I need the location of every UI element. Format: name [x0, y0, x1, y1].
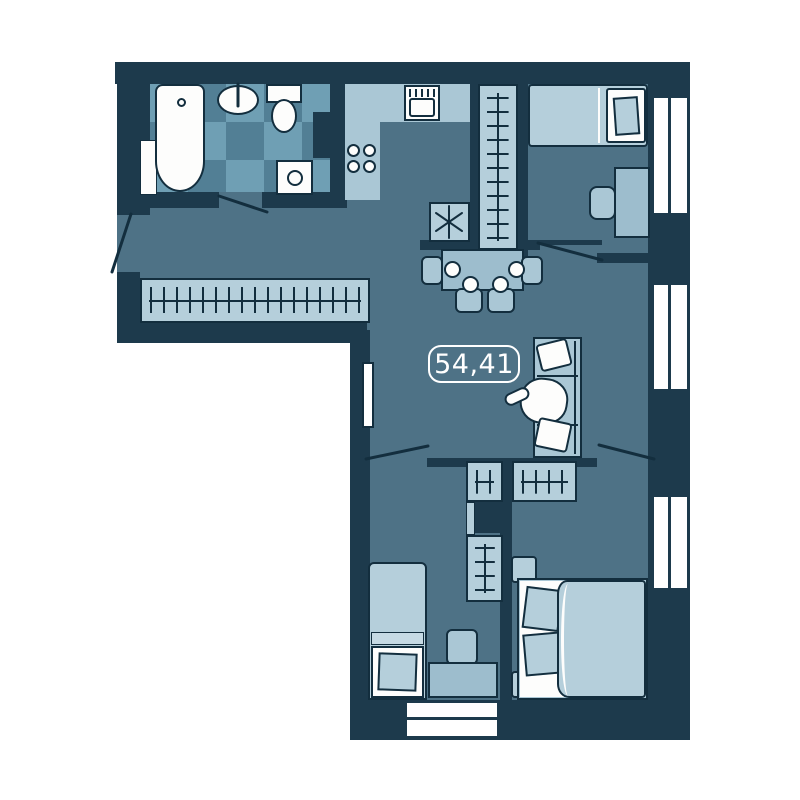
bathtub-drain	[177, 98, 186, 107]
cabinet-strip	[466, 502, 475, 535]
stove-burner-3	[347, 160, 360, 173]
wall-hall-south	[117, 320, 367, 343]
window-bottom	[407, 703, 497, 736]
wall-bedroom-tr-south	[597, 253, 648, 263]
pillow-inner	[377, 652, 417, 691]
sofa-backrest	[574, 341, 576, 454]
double-bed	[517, 578, 648, 700]
bathroom-sink	[217, 85, 259, 115]
kitchen-sink-basin	[409, 98, 435, 117]
window-right-3	[654, 497, 687, 588]
pantry-closet	[478, 84, 518, 250]
stove-burner-4	[363, 160, 376, 173]
fridge	[429, 202, 470, 242]
plate-2	[508, 261, 525, 278]
toilet-bowl	[271, 99, 297, 133]
kitchen-faucet	[409, 89, 435, 97]
stove-burner-2	[363, 144, 376, 157]
hall-wardrobe	[140, 278, 370, 323]
bed-pillow	[606, 88, 646, 143]
wardrobe-side	[466, 535, 503, 602]
wall-top	[115, 62, 690, 84]
window-mullion	[407, 717, 497, 720]
bed-top-right	[528, 84, 648, 147]
wardrobe-b	[512, 461, 577, 502]
plate-4	[492, 276, 509, 293]
desk-bottom-left	[428, 662, 498, 698]
chair-top-right	[589, 186, 616, 220]
bed-fold-line	[598, 88, 600, 143]
plate-1	[444, 261, 461, 278]
window-mullion	[668, 98, 671, 213]
plate-3	[462, 276, 479, 293]
wall-living-north-lintel	[540, 240, 602, 245]
desk-top-right	[614, 167, 650, 238]
area-value: 54,41	[434, 349, 514, 380]
wardrobe-a	[466, 461, 503, 502]
wall-pier	[313, 112, 340, 158]
dining-chair-left	[421, 256, 443, 285]
window-right-2	[654, 285, 687, 389]
bathtub	[155, 84, 205, 192]
floor-plan: 54,41	[0, 0, 800, 800]
duvet-crease	[561, 584, 575, 696]
bed-duvet	[557, 580, 646, 698]
bed-bottom-left	[368, 562, 427, 700]
chair-bottom-left	[446, 629, 478, 665]
wall-pantry-left	[470, 84, 478, 250]
bed-fold-band	[371, 632, 424, 645]
washing-machine	[276, 160, 313, 195]
washing-machine-door	[287, 170, 303, 186]
bed-pillow-zone	[371, 646, 424, 698]
area-label: 54,41	[428, 345, 520, 383]
pillow-inner	[613, 96, 641, 136]
window-mullion	[668, 285, 671, 389]
duct-shaft	[474, 502, 503, 533]
wall-pantry-right	[518, 84, 528, 262]
wall-bottom	[350, 700, 690, 740]
kitchen-sink	[404, 85, 440, 121]
window-mullion	[668, 497, 671, 588]
exterior-notch	[117, 343, 350, 743]
stove-burner-1	[347, 144, 360, 157]
window-living-left	[362, 362, 374, 428]
window-right-1	[654, 98, 687, 213]
